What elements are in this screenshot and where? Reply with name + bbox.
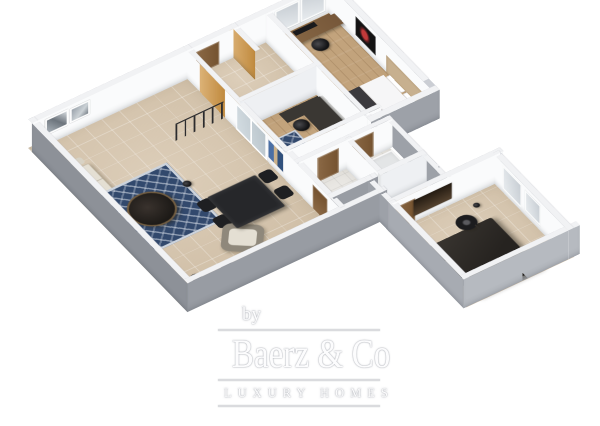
framed-picture-2	[70, 100, 90, 124]
watermark: by Baerz & Co LUXURY HOMES	[218, 302, 380, 407]
watermark-tagline: LUXURY HOMES	[218, 381, 380, 405]
page-background: by Baerz & Co LUXURY HOMES	[0, 0, 600, 426]
watermark-prefix: by	[218, 302, 380, 329]
armchair-cushion	[228, 228, 258, 246]
watermark-brand: Baerz & Co	[232, 331, 366, 379]
watermark-rule-bottom	[218, 405, 380, 407]
